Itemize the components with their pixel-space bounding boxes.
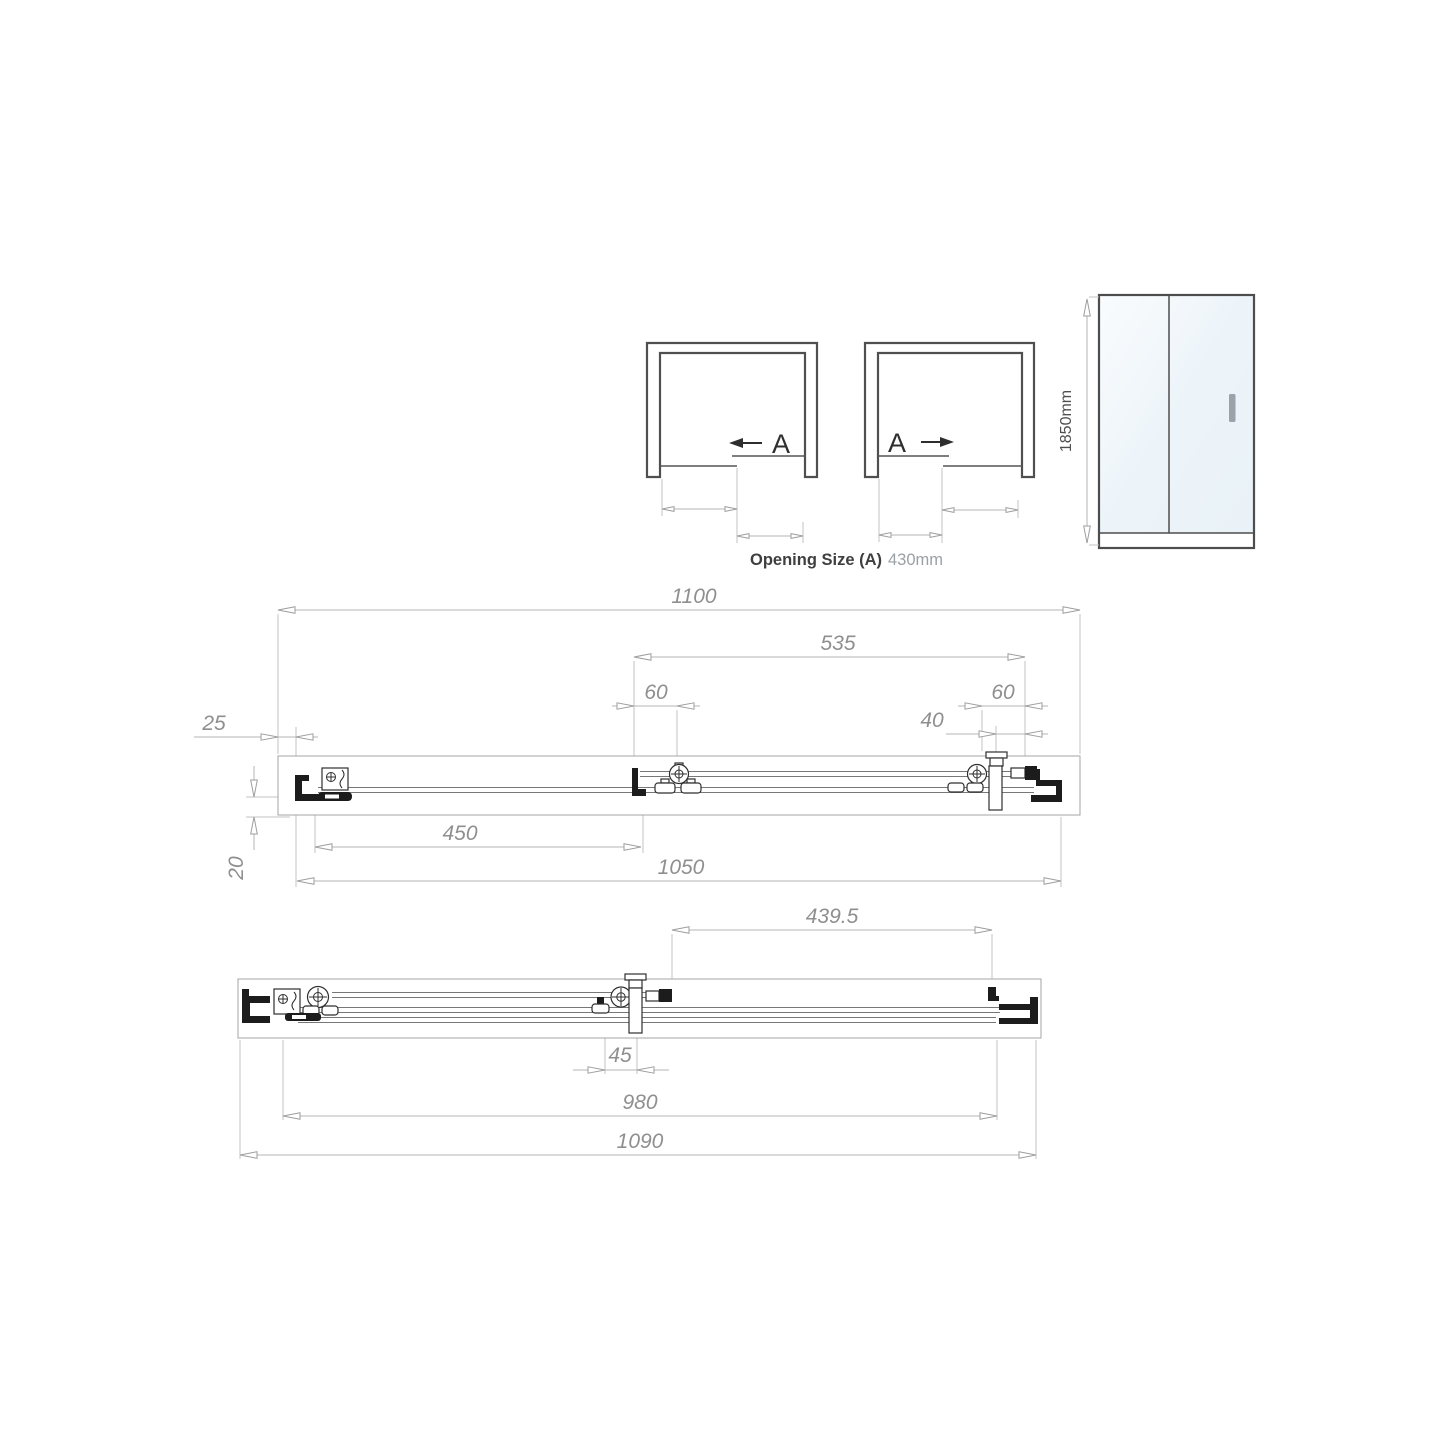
- door-end-cap: [659, 989, 672, 1002]
- height-dim-label: 1850mm: [1058, 390, 1075, 452]
- slide-diagram-left: A: [647, 343, 817, 543]
- dim-1050: 1050: [658, 856, 705, 879]
- plan-section-b: 439.5 45 980 1090: [238, 905, 1041, 1159]
- handle-post: [629, 988, 642, 1033]
- handle-knob: [625, 974, 646, 980]
- dim-45: 45: [608, 1044, 632, 1067]
- dim-535: 535: [820, 632, 855, 655]
- dim-20: 20: [225, 856, 248, 881]
- handle-knob: [986, 752, 1007, 758]
- opening-label-a-right: A: [888, 428, 906, 458]
- technical-drawing-page: A A Opening Size (A)430mm 1850mm: [0, 0, 1445, 1445]
- opening-size-caption-value: 430mm: [888, 551, 943, 569]
- dim-60-left: 60: [644, 681, 668, 704]
- dim-1100: 1100: [671, 585, 716, 608]
- door-handle: [1229, 394, 1236, 422]
- dim-25: 25: [201, 712, 226, 735]
- dim-980: 980: [622, 1091, 657, 1114]
- bottom-rail: [1099, 533, 1254, 548]
- slide-diagram-right: A: [865, 343, 1034, 543]
- handle-post: [989, 766, 1002, 810]
- front-elevation: 1850mm: [1058, 295, 1254, 548]
- opening-size-caption: Opening Size (A)430mm: [750, 551, 943, 569]
- opening-size-caption-label: Opening Size (A): [750, 551, 882, 569]
- shower-door-technical-drawing: A A Opening Size (A)430mm 1850mm: [0, 0, 1445, 1445]
- enclosure-outline: [647, 343, 817, 477]
- dim-1090: 1090: [617, 1130, 664, 1153]
- dim-450: 450: [442, 822, 477, 845]
- dim-439-5: 439.5: [806, 905, 859, 928]
- plan-section-a: 1100 535 60 60 40 25 450 1050 20: [194, 585, 1080, 887]
- opening-label-a-left: A: [772, 429, 790, 459]
- dim-40: 40: [920, 709, 944, 732]
- dim-60-right: 60: [991, 681, 1015, 704]
